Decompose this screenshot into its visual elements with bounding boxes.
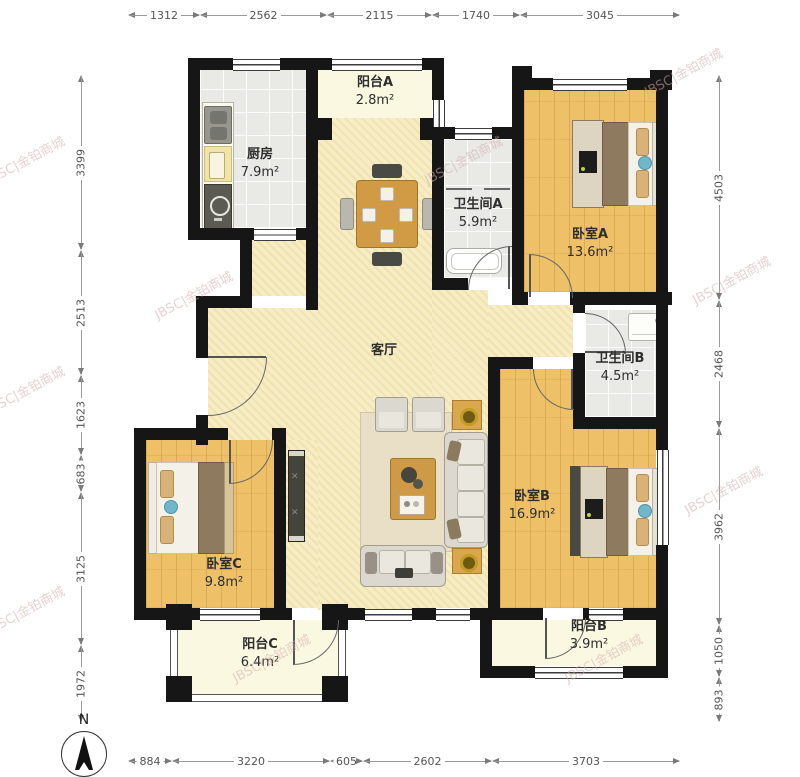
room-label-bedroom-b: 卧室B 16.9m² [486,488,578,524]
dimension-left-2: 2513 [74,250,88,375]
dining-chair-north [372,164,402,178]
wall-segment [656,612,668,678]
dimension-left-6: 1972 [74,645,88,722]
room-label-balcony-c: 阳台C 6.4m² [212,636,308,672]
wall-segment [306,118,332,140]
window [657,450,669,545]
balcony-rail [170,630,178,676]
dimension-value: 1050 [713,634,726,668]
wall-segment [492,127,512,139]
dimension-right-2: 2468 [712,300,726,428]
dimension-value: 3399 [75,146,88,180]
gold-lamp [460,554,478,572]
room-area: 4.5m² [574,368,666,386]
loveseat-pillow [431,552,443,574]
compass-circle [61,731,107,777]
wall-segment [512,78,553,90]
wall-segment [432,58,444,100]
tv-cabinet: ✕ ✕ [288,450,305,542]
sofa [444,432,488,548]
room-name: 客厅 [348,342,420,360]
north-arrow: N [58,712,110,776]
sofa-cushion [457,465,485,491]
dimension-bottom-4: 2602 [363,754,492,768]
balcony-rail [192,694,322,702]
room-label-bedroom-a: 卧室A 13.6m² [542,226,638,262]
sofa-cushion [457,517,485,543]
dimension-value: 3125 [75,552,88,586]
window [455,128,492,140]
wall-segment [573,298,585,313]
wall-segment [196,296,252,308]
window [436,609,470,621]
window [553,79,627,91]
loveseat-item [395,568,413,578]
sink-basin [210,127,227,140]
room-name: 厨房 [210,146,310,164]
dimension-right-3: 3962 [712,428,726,625]
wall-segment [306,58,318,310]
room-area: 13.6m² [542,244,638,262]
wall-segment [656,78,668,450]
wall-segment [512,78,524,305]
dimension-left-1: 3399 [74,75,88,250]
wall-segment [274,428,286,620]
wall-segment [134,428,228,440]
window [233,59,280,71]
balcony-rail [338,630,346,676]
room-label-balcony-a: 阳台A 2.8m² [327,74,423,110]
dimension-value: 3045 [583,9,617,22]
cabinet-cap [289,451,304,456]
room-area: 9.8m² [178,574,270,592]
window [365,609,412,621]
room-label-living: 客厅 [348,342,420,360]
dimension-value: 2468 [713,347,726,381]
dimension-value: 3703 [569,755,603,768]
loveseat-pillow [365,552,377,574]
dimension-value: 605 [333,755,360,768]
dimension-value: 683 [75,460,88,487]
wall-segment [500,608,543,620]
indicator-dot [587,513,591,517]
dimension-top-1: 1312 [128,8,200,22]
bed-pillow [160,470,174,498]
bed-pillow [636,518,649,546]
watermark: JBSC|金铂商城 [0,361,68,418]
room-name: 阳台C [212,636,308,654]
armchair-cushion [416,412,441,428]
armchair-cushion [379,412,404,428]
watermark: JBSC|金铂商城 [689,251,774,308]
kitchen-opening [254,229,296,241]
dimension-right-5: 893 [712,677,726,722]
stove-knob [214,218,222,221]
room-label-balcony-b: 阳台B 3.9m² [546,618,632,654]
watermark: JBSC|金铂商城 [0,131,68,188]
tray-item [413,501,419,507]
wall-segment [188,58,200,240]
watermark: JBSC|金铂商城 [0,581,68,638]
dimension-value: 1623 [75,398,88,432]
coffee-table [390,458,436,520]
dimension-bottom-1: 884 [128,754,172,768]
bed-blanket [606,468,630,556]
room-name: 卧室C [178,556,270,574]
side-table [452,548,482,574]
dimension-left-4: 683 [74,455,88,492]
side-table [452,400,482,430]
wall-segment [196,308,208,358]
dining-table [356,180,418,248]
sink-basin [210,111,227,124]
wall-segment [188,228,254,240]
dimension-value: 4503 [713,171,726,205]
dimension-top-3: 2115 [327,8,432,22]
indicator-dot [581,167,585,171]
dimension-left-3: 1623 [74,375,88,455]
dimension-value: 1312 [147,9,181,22]
cabinet-cap [289,536,304,541]
pillar [322,676,348,702]
room-name: 阳台A [327,74,423,92]
dimension-value: 2562 [247,9,281,22]
dimension-value: 2513 [75,296,88,330]
room-name: 阳台B [546,618,632,636]
speaker-x-icon: ✕ [291,509,299,518]
dimension-left-5: 3125 [74,492,88,645]
dimension-bottom-5: 3703 [492,754,680,768]
bed-blanket [602,122,630,206]
dimension-value: 2602 [411,755,445,768]
pillar [166,604,192,630]
armchair [375,397,408,432]
bed-pillow [160,516,174,544]
floor-plan: ✕ ✕ [0,0,800,777]
room-label-bedroom-c: 卧室C 9.8m² [178,556,270,592]
north-label: N [58,712,110,728]
gold-lamp [460,408,478,426]
plate [399,208,413,222]
room-area: 5.9m² [430,214,526,232]
wall-segment [492,666,535,678]
bed-blanket [198,462,226,554]
room-name: 卧室A [542,226,638,244]
dimension-top-2: 2562 [200,8,327,22]
dimension-value: 1740 [459,9,493,22]
pillar [166,676,192,702]
bed-pillow [636,170,649,198]
wall-segment [512,292,528,305]
wall-segment [318,58,332,70]
dimension-top-5: 3045 [520,8,680,22]
wall-segment [296,228,306,240]
wardrobe [572,120,604,208]
room-name: 卧室B [486,488,578,506]
room-label-bath-b: 卫生间B 4.5m² [574,350,666,386]
wall-segment [260,608,286,620]
plate [362,208,376,222]
wall-segment [134,428,146,620]
dimension-top-4: 1740 [432,8,520,22]
dimension-value: 893 [713,686,726,713]
room-area: 6.4m² [212,654,308,672]
shower-screen [484,188,510,190]
wall-segment [412,608,436,620]
room-area: 16.9m² [486,506,578,524]
dining-chair-west [340,198,354,230]
room-name: 卫生间B [574,350,666,368]
room-label-kitchen: 厨房 7.9m² [210,146,310,182]
compass-notch [79,762,89,770]
accent-pillow [164,500,178,514]
dimension-value: 3962 [713,510,726,544]
table-tray [399,495,425,515]
room-area: 7.9m² [210,164,310,182]
window [535,667,623,679]
window [332,59,422,71]
wall-segment [432,278,468,290]
sofa-cushion [457,491,485,517]
tray-item [404,501,410,507]
wall-segment [573,417,668,429]
living-corridor [488,305,573,357]
wall-segment [286,608,292,620]
dimension-value: 1972 [75,667,88,701]
accent-pillow [638,156,652,170]
accent-pillow [638,504,652,518]
dimension-value: 3220 [234,755,268,768]
dining-chair-south [372,252,402,266]
dimension-bottom-2: 3220 [172,754,330,768]
room-area: 2.8m² [327,92,423,110]
dimension-right-4: 1050 [712,625,726,677]
shower-screen [446,188,472,190]
bed-b [570,466,658,556]
dimension-right-1: 4503 [712,75,726,300]
bed-pillow [636,128,649,156]
kitchen-stove [204,184,232,230]
window [200,609,260,621]
bed-c [148,460,232,554]
room-label-bath-a: 卫生间A 5.9m² [430,196,526,232]
loveseat [360,545,446,587]
stove-burner [210,196,230,216]
bed-pillow [636,474,649,502]
wall-segment [432,127,455,139]
wardrobe [580,466,608,558]
armchair [412,397,445,432]
speaker-x-icon: ✕ [291,473,299,482]
window [433,100,445,127]
bed-a [572,120,658,206]
wall-segment [480,612,492,678]
room-area: 3.9m² [546,636,632,654]
room-name: 卫生间A [430,196,526,214]
kitchen-sink [204,106,232,144]
dimension-value: 2115 [363,9,397,22]
dimension-value: 884 [137,755,164,768]
table-plant [413,479,423,489]
wall-segment [570,292,672,305]
plate [380,229,394,243]
plate [380,187,394,201]
dimension-bottom-3: 605 [330,754,363,768]
entry-recess [252,240,306,296]
